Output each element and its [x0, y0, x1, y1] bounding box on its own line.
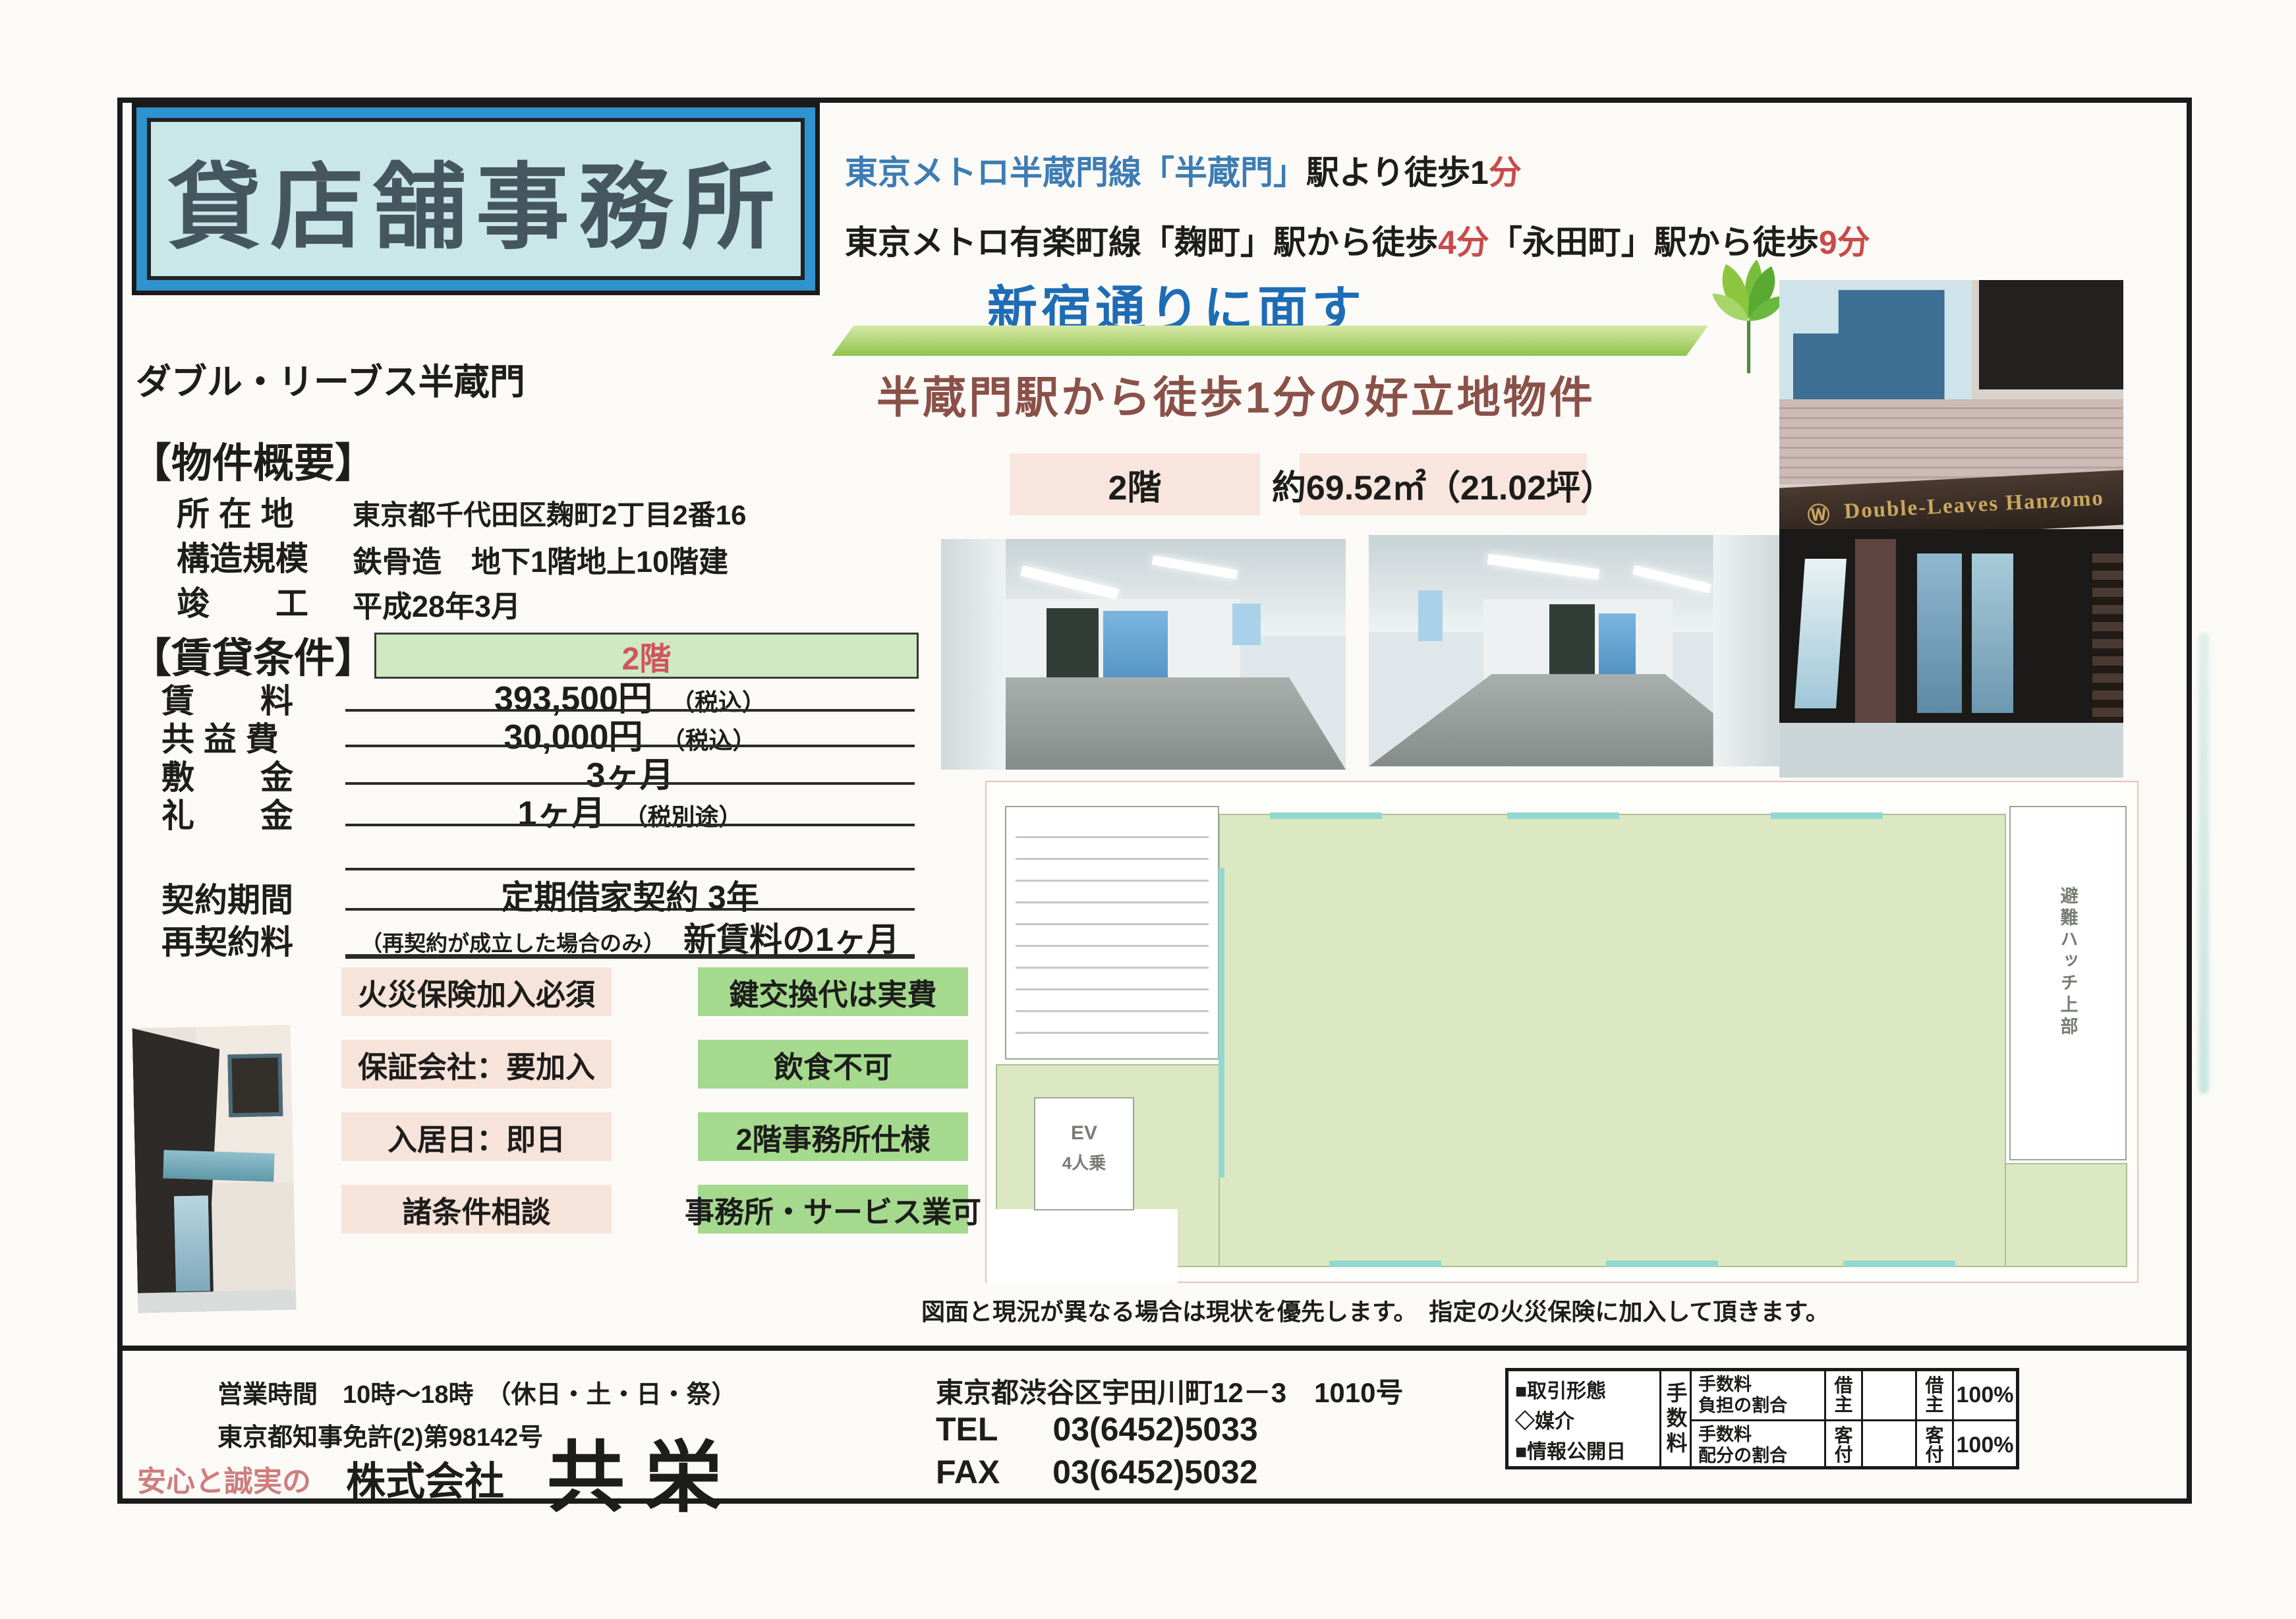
fee-item-cell: 手数料 配分の割合 [1692, 1421, 1826, 1469]
fee-party-text: 客付 [1833, 1426, 1854, 1465]
tel-label: TEL [936, 1411, 998, 1448]
plan-window [1329, 1261, 1441, 1267]
fee-party-text: 借主 [1924, 1376, 1945, 1415]
plan-stair-hatching [1016, 816, 1209, 1049]
page-title: 貸店舗事務所 [167, 131, 784, 267]
company-prefix: 株式会社 [346, 1450, 504, 1507]
plan-room-extension [2005, 1163, 2127, 1267]
terms-row-value: 1ヶ月 （税別途） [345, 785, 915, 835]
rule-line [345, 824, 915, 826]
plan-hatch-label: 避難ハッチ上部 [2055, 886, 2081, 1038]
badge-negotiable: 諸条件相談 [341, 1185, 612, 1234]
photo-lattice [2092, 554, 2123, 727]
photo-wall [1713, 535, 1779, 766]
fax-number: 03(6452)5032 [1052, 1454, 1257, 1491]
contract-row-label: 契約期間 [161, 874, 293, 921]
photo-sidewalk [1779, 723, 2123, 778]
plan-window [1606, 1261, 1718, 1267]
overview-row-value: 鉄骨造 地下1階地上10階建 [353, 538, 728, 581]
building-name: ダブル・リーブス半蔵門 [136, 353, 525, 405]
photo-window [227, 1054, 283, 1118]
unit-area-label: 約69.52㎡（21.02坪） [1300, 453, 1587, 515]
building-sign-text: Double-Leaves Hanzomo [1843, 486, 2104, 525]
plan-stairwell [1005, 806, 1219, 1060]
photo-wall [941, 539, 1006, 770]
badge-move-in: 入居日：即日 [341, 1112, 612, 1161]
photo-window [1599, 613, 1636, 683]
building-photo: Ⓦ Double-Leaves Hanzomo [1779, 280, 2123, 778]
photo-glass-door [1972, 554, 2013, 713]
fee-header-cell: 手数料 [1661, 1371, 1692, 1469]
fee-item-line: 負担の割合 [1698, 1395, 1787, 1416]
deal-type-line: ◇媒介 [1515, 1405, 1574, 1434]
renewal-note: （再契約が成立した場合のみ） [360, 926, 665, 957]
plan-hatch-area: 避難ハッチ上部 [2009, 806, 2127, 1160]
access-line-2-minutes2: 9分 [1819, 224, 1870, 261]
fee-party-cell: 借主 [1826, 1371, 1863, 1421]
badge-office-spec: 2階事務所仕様 [698, 1112, 968, 1161]
overview-row-value: 東京都千代田区麹町2丁目2番16 [353, 493, 746, 533]
key-money-note: （税別途） [623, 798, 742, 832]
rule-line [345, 868, 915, 870]
fee-party-text: 客付 [1924, 1426, 1945, 1465]
contract-row-value: 定期借家契約 3年 [345, 871, 915, 919]
photo-ground [138, 1290, 297, 1313]
access-line-2-part1: 東京メトロ有楽町線「麹町」駅から徒歩 [845, 224, 1438, 261]
badge-office-service: 事務所・サービス業可 [698, 1185, 968, 1234]
company-tagline: 安心と誠実の [137, 1458, 311, 1500]
fee-item-cell: 手数料 負担の割合 [1692, 1371, 1826, 1421]
access-line-2-minutes1: 4分 [1438, 224, 1489, 261]
photo-upper-window [1979, 280, 2123, 389]
flyer-page: 貸店舗事務所 東京メトロ半蔵門線「半蔵門」駅より徒歩1分 東京メトロ有楽町線「麹… [0, 0, 2296, 1619]
tel-number: 03(6452)5033 [1052, 1411, 1257, 1448]
badge-no-food: 飲食不可 [698, 1040, 968, 1089]
overview-heading: 【物件概要】 [130, 430, 376, 489]
floor-plan-caption: 図面と現況が異なる場合は現状を優先します。 指定の火災保険に加入して頂きます。 [921, 1293, 1829, 1327]
access-line-1-line-name: 東京メトロ半蔵門線「半蔵門」 [845, 154, 1306, 191]
access-line-1-minutes: 分 [1489, 154, 1522, 191]
unit-floor-label: 2階 [1010, 453, 1260, 515]
photo-window [1418, 590, 1443, 641]
deal-type-line: ■情報公開日 [1515, 1435, 1626, 1464]
plan-window [1507, 812, 1619, 819]
interior-photo-2 [1369, 535, 1779, 766]
plan-elevator-capacity: 4人乗 [1035, 1150, 1133, 1174]
fax-row: FAX 03(6452)5032 [936, 1453, 1258, 1491]
plan-main-room [1219, 814, 2006, 1267]
plan-window [1771, 812, 1883, 819]
plan-window [1219, 868, 1224, 1178]
fee-blank-cell [1863, 1371, 1917, 1421]
fee-percent-cell: 100% [1954, 1421, 2016, 1469]
fee-party-cell: 借主 [1917, 1371, 1954, 1421]
plan-elevator: EV 4人乗 [1034, 1097, 1134, 1210]
plan-window [1270, 812, 1382, 819]
key-money-value: 1ヶ月 [518, 785, 606, 835]
interior-photo-1 [941, 539, 1346, 770]
rule-line [345, 709, 915, 712]
fee-party-cell: 客付 [1917, 1421, 1954, 1469]
overview-row-value: 平成28年3月 [353, 582, 521, 625]
photo-pillar [1855, 539, 1897, 728]
building-sign-logo: Ⓦ [1806, 497, 1831, 530]
photo-awning [163, 1150, 274, 1181]
catch-subtitle: 半蔵門駅から徒歩1分の好立地物件 [876, 362, 1595, 426]
plan-window [1843, 1261, 1955, 1267]
contract-row-value: （再契約が成立した場合のみ） 新賃料の1ヶ月 [345, 913, 915, 961]
green-swoosh [832, 326, 1708, 356]
section-divider [117, 1346, 2192, 1351]
terms-row-label: 礼 金 [161, 789, 293, 837]
deal-info-table: ■取引形態 ◇媒介 ■情報公開日 手数料 手数料 負担の割合 借主 借主 100… [1505, 1368, 2019, 1469]
company-name: 共栄 [547, 1414, 742, 1527]
badge-guarantor: 保証会社：要加入 [341, 1040, 612, 1089]
tel-row: TEL 03(6452)5033 [936, 1410, 1258, 1448]
exterior-photo-small [132, 1025, 297, 1313]
company-address: 東京都渋谷区宇田川町12－3 1010号 [936, 1371, 1404, 1411]
badge-key-exchange: 鍵交換代は実費 [698, 967, 968, 1016]
title-box: 貸店舗事務所 [132, 103, 820, 295]
renewal-value: 新賃料の1ヶ月 [683, 913, 900, 961]
overview-row-label: 構造規模 [177, 532, 308, 580]
license-number: 東京都知事免許(2)第98142号 [217, 1417, 543, 1453]
fee-percent-cell: 100% [1954, 1371, 2016, 1421]
badge-fire-insurance: 火災保険加入必須 [341, 967, 612, 1016]
overview-row-label: 竣 工 [177, 577, 308, 625]
fax-label: FAX [936, 1454, 1000, 1491]
photo-glass-door [1917, 554, 1962, 713]
fee-party-text: 借主 [1833, 1376, 1854, 1415]
fee-party-cell: 客付 [1826, 1421, 1863, 1469]
office-hours: 営業時間 10時～18時 （休日・土・日・祭） [217, 1374, 737, 1410]
overview-row-label: 所 在 地 [177, 488, 294, 535]
access-line-1-walk: 駅より徒歩1 [1306, 154, 1489, 191]
deal-type-line: ■取引形態 [1515, 1375, 1606, 1404]
fee-item-line: 手数料 [1698, 1374, 1752, 1395]
photo-brick-wall [1779, 399, 2123, 484]
fee-item-line: 配分の割合 [1698, 1445, 1787, 1466]
scan-artifact [2198, 633, 2209, 1094]
rule-line [345, 745, 915, 747]
fee-item-line: 手数料 [1698, 1424, 1752, 1445]
photo-glass-door [171, 1192, 214, 1295]
photo-window [1232, 604, 1261, 645]
fee-blank-cell [1863, 1421, 1917, 1469]
contract-row-label: 再契約料 [161, 916, 293, 963]
plan-void [987, 1209, 1178, 1283]
rule-line [345, 782, 915, 785]
floor-plan: EV 4人乗 避難ハッチ上部 [985, 781, 2138, 1283]
access-line-1: 東京メトロ半蔵門線「半蔵門」駅より徒歩1分 [845, 146, 1522, 194]
plan-elevator-label: EV [1035, 1122, 1133, 1145]
deal-type-cell: ■取引形態 ◇媒介 ■情報公開日 [1508, 1371, 1661, 1469]
contract-period-value: 定期借家契約 3年 [501, 871, 759, 919]
